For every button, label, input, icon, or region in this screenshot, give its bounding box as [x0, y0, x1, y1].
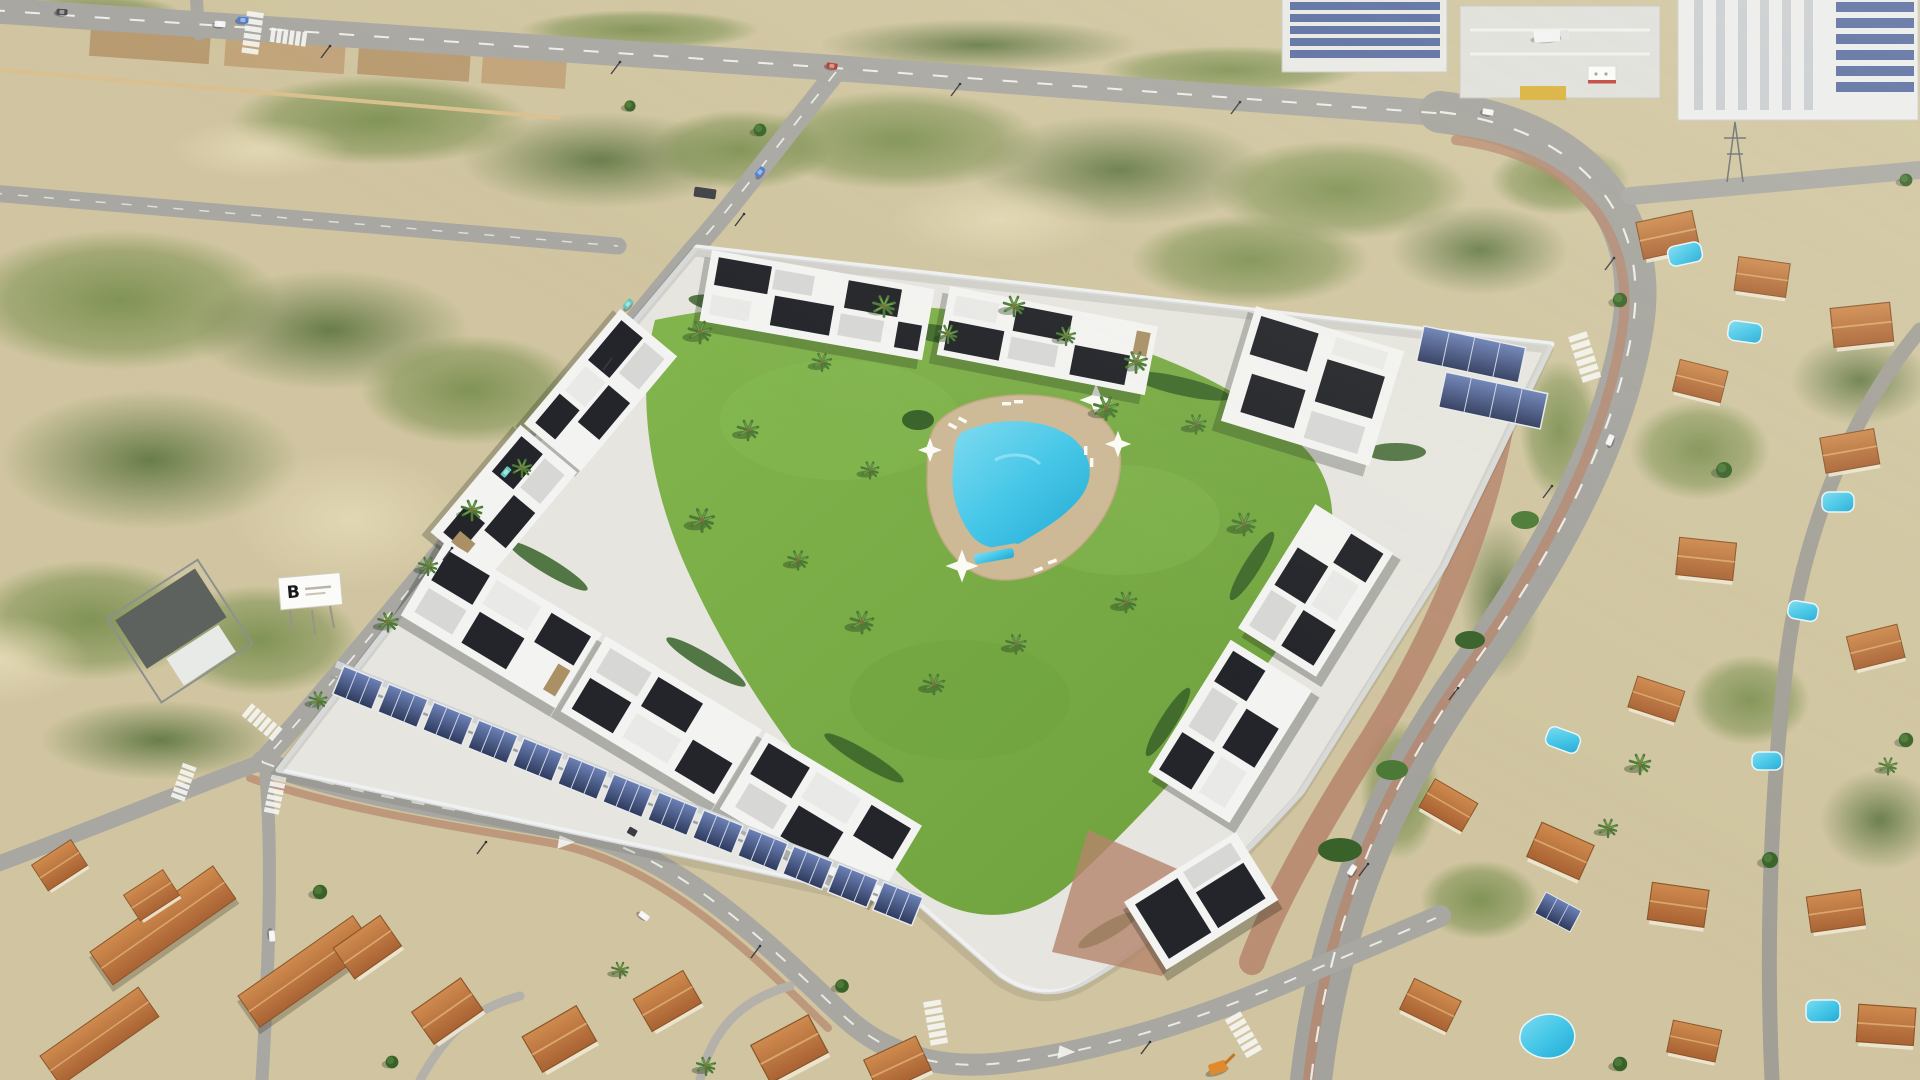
aerial-scene: B [0, 0, 1920, 1080]
sunlight-overlay [0, 0, 1920, 1080]
aerial-photo: B [0, 0, 1920, 1080]
